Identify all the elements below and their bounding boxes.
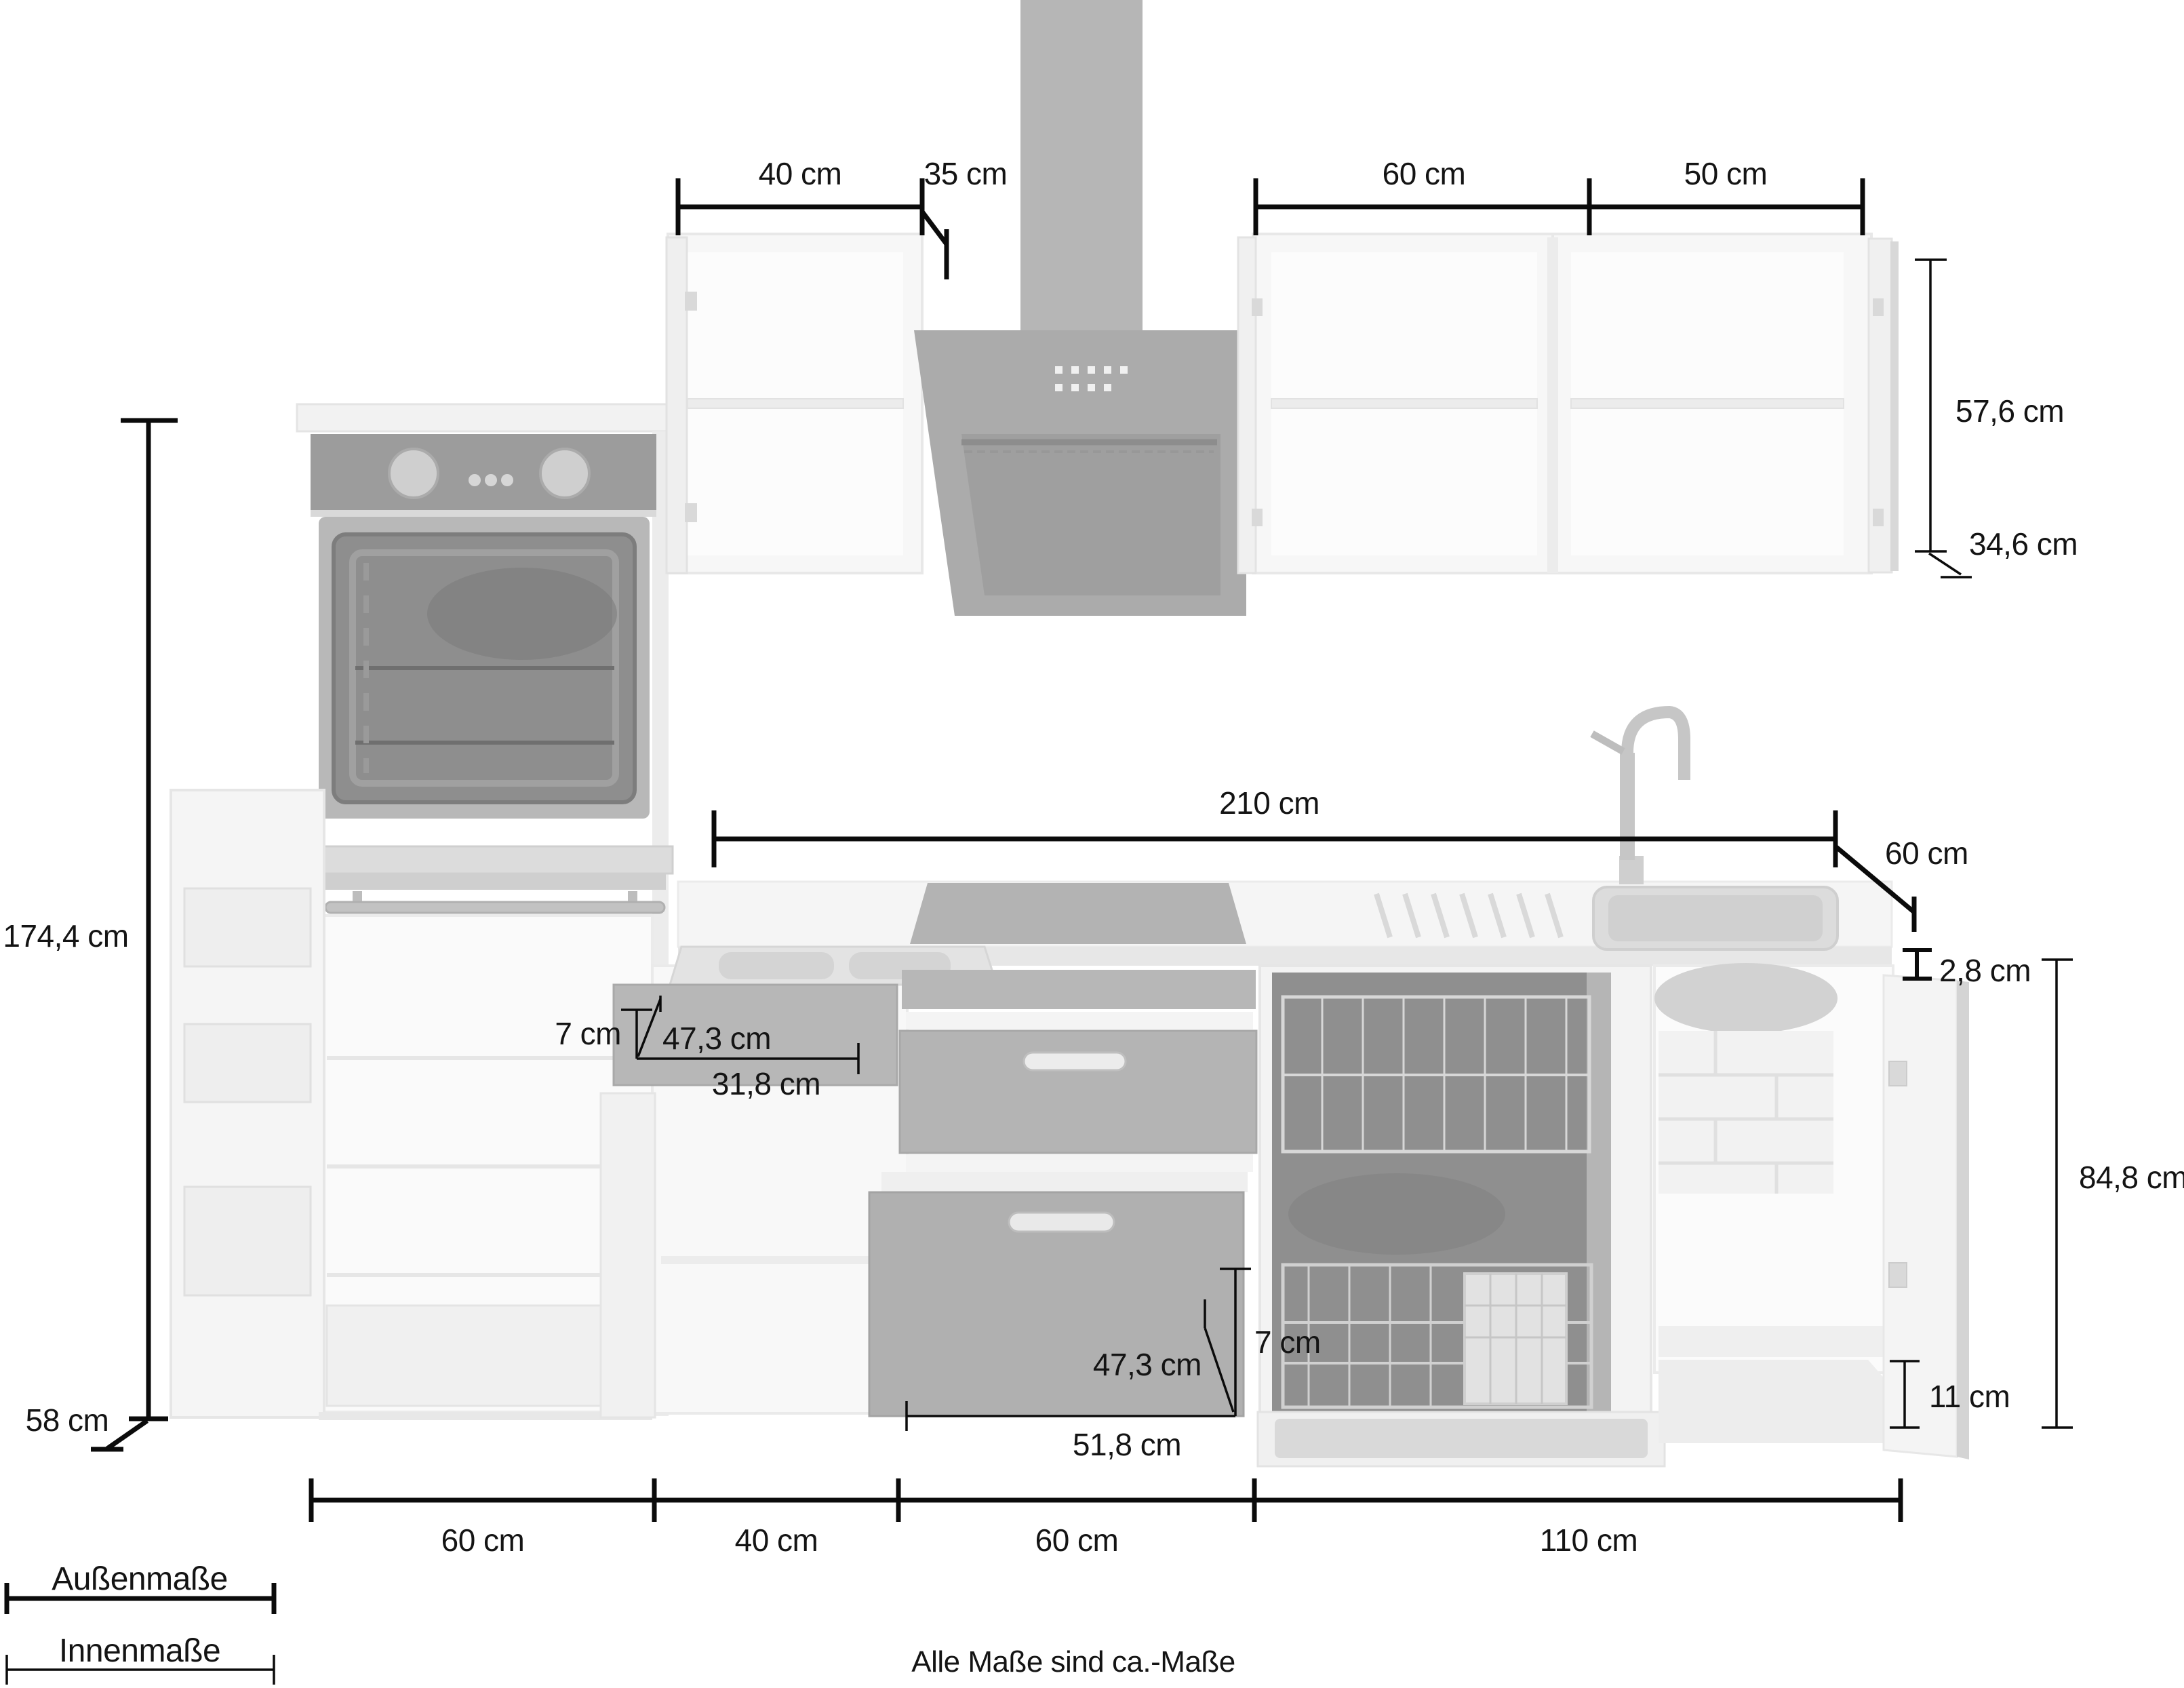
dim-label-worktop-thickness: 2,8 cm (1939, 953, 2031, 988)
dim-wall-inner-depth-line (1929, 553, 1972, 577)
dim-label-drawer-small-inner-width: 31,8 cm (712, 1066, 820, 1101)
hinge-icon (1252, 298, 1263, 316)
drawer-handle (1024, 1053, 1126, 1070)
cooktop (910, 883, 1246, 944)
oven-knob-icon (540, 449, 589, 498)
faucet-base (1619, 856, 1644, 884)
sink-base-shelf (661, 1256, 898, 1264)
sink-basin-inner (1608, 895, 1823, 941)
legend-outer-label: Außenmaße (52, 1561, 228, 1597)
drawer-top-front (902, 970, 1256, 1009)
dim-total-height-line (121, 420, 178, 1419)
dishwasher (1258, 966, 1665, 1466)
wall-cabinet-50-shelf (1571, 399, 1844, 408)
dim-label-total-height: 174,4 cm (3, 918, 128, 954)
oven-handle (325, 902, 664, 913)
kitchen-rendering (171, 0, 1969, 1466)
hinge-icon (1252, 509, 1263, 526)
oven-control-panel (311, 434, 656, 510)
dim-hood-depth-line (922, 212, 947, 279)
dim-label-drawer-large-inner-depth: 47,3 cm (1093, 1347, 1202, 1382)
dim-label-drawer-small-inner-depth: 47,3 cm (662, 1021, 771, 1056)
drawer-open-box (881, 1172, 1248, 1192)
hinge-icon (685, 292, 697, 311)
dim-label-wall-inner-height: 57,6 cm (1955, 393, 2064, 429)
hood-chimney (1020, 0, 1143, 331)
dim-wall-inner-height-line (1915, 260, 1947, 551)
wall-cabinet-left-door-open (667, 237, 687, 573)
right-cabinet-floor (1659, 1326, 1892, 1357)
faucet (1592, 712, 1684, 884)
fridge-crisper (327, 1306, 644, 1406)
legend-inner-label: Innenmaße (59, 1633, 220, 1669)
dim-label-drawer-large-inner-width: 51,8 cm (1073, 1427, 1181, 1462)
oven-button-icon (501, 474, 513, 486)
wall-cabinet-left-shelf (688, 399, 903, 408)
fridge-door-rack (184, 1024, 311, 1102)
hinge-icon (1889, 1061, 1907, 1086)
base-cabinet-right (1654, 963, 1969, 1459)
dim-label-plinth-height: 11 cm (1929, 1379, 2010, 1414)
oven-vent (311, 510, 656, 517)
dim-label-wall-inner-depth: 34,6 cm (1969, 526, 2078, 562)
cutlery-tray-compartment (719, 952, 834, 979)
wall-cabinet-divider (1547, 237, 1558, 573)
dim-label-worktop-depth: 60 cm (1885, 836, 1968, 871)
wall-cabinet-60-shelf (1271, 399, 1537, 408)
extractor-hood (914, 0, 1246, 616)
dim-label-base-width-3: 60 cm (1035, 1523, 1119, 1558)
sink-base-door-open (601, 1093, 655, 1417)
fridge-door-rack (184, 888, 311, 966)
drawer-gap (906, 1012, 1253, 1029)
dim-label-base-width-2: 40 cm (735, 1523, 818, 1558)
dishwasher-shadow (1288, 1173, 1505, 1255)
hinge-icon (1889, 1263, 1907, 1287)
oven-knob-icon (389, 449, 438, 498)
dim-base-inner-height-line (2042, 960, 2073, 1428)
drawer-handle (1009, 1213, 1114, 1232)
brick-wall (1659, 1031, 1833, 1194)
dimension-diagram: 40 cm 35 cm 60 cm 50 cm 57,6 cm 34,6 cm … (0, 0, 2184, 1688)
dim-wall-right-widths-line (1256, 178, 1863, 235)
wall-cabinet-50-door-edge (1890, 241, 1899, 571)
dim-label-wall-right-width-1: 60 cm (1383, 156, 1466, 191)
dim-base-widths-line (311, 1478, 1901, 1522)
dim-label-drawer-small-inner-height: 7 cm (555, 1016, 621, 1051)
drawer-middle-front (900, 1031, 1256, 1153)
dim-label-tall-unit-depth: 58 cm (26, 1402, 109, 1438)
hinge-icon (685, 503, 697, 522)
dim-label-base-inner-height: 84,8 cm (2079, 1160, 2184, 1195)
dim-label-worktop-run: 210 cm (1219, 785, 1319, 821)
hinge-icon (1873, 298, 1884, 316)
dim-worktop-thickness-line (1903, 950, 1932, 979)
dim-label-hood-depth: 35 cm (924, 156, 1008, 191)
dim-label-base-width-1: 60 cm (441, 1523, 525, 1558)
wall-cabinet-left (667, 234, 922, 573)
faucet-lever (1592, 734, 1623, 751)
dim-label-wall-right-width-2: 50 cm (1684, 156, 1768, 191)
tall-unit-top (297, 404, 670, 431)
hinge-icon (1873, 509, 1884, 526)
dim-label-drawer-large-inner-height: 7 cm (1254, 1324, 1321, 1360)
dim-label-base-width-4: 110 cm (1540, 1523, 1637, 1558)
footer-note: Alle Maße sind ca.-Maße (911, 1645, 1235, 1679)
fridge-door-rack (184, 1187, 311, 1295)
dim-label-wall-left-width: 40 cm (759, 156, 842, 191)
tall-unit (171, 404, 673, 1420)
oven-button-icon (469, 474, 481, 486)
drawer-gap (906, 1154, 1253, 1172)
oven-button-icon (485, 474, 497, 486)
fridge-door-open (171, 790, 324, 1417)
wall-cabinet-right (1238, 234, 1899, 573)
sink-basin-underside (1654, 963, 1838, 1034)
hood-glass (961, 434, 1220, 595)
dishwasher-door-inner (1275, 1419, 1648, 1458)
oven-fan (427, 568, 617, 660)
